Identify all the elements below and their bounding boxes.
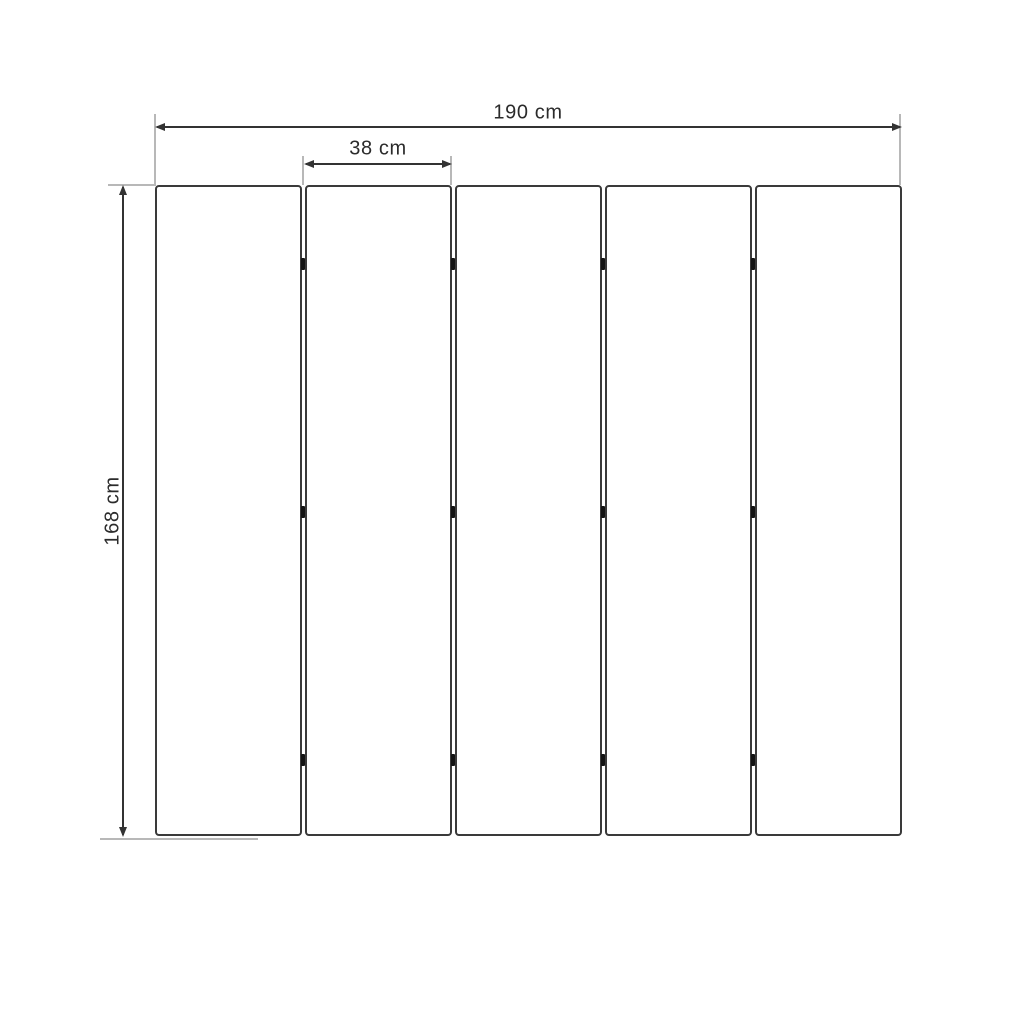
hinge-mark [451,754,455,766]
hinge-mark [601,754,605,766]
hinge-mark [601,258,605,270]
panel-1 [155,185,302,836]
hinge-mark [751,754,755,766]
arrowhead-down-icon [119,827,127,837]
panel-2 [305,185,452,836]
height-label: 168 cm [102,476,125,545]
panel-width-label: 38 cm [349,138,406,161]
hinge-mark [451,258,455,270]
dimension-line-total-width [157,126,900,128]
hinge-mark [301,754,305,766]
dimension-line-panel-width [306,163,450,165]
arrowhead-right-icon [442,160,452,168]
panel-group [155,185,902,836]
hinge-mark [301,506,305,518]
total-width-label: 190 cm [493,102,562,125]
arrowhead-left-icon [304,160,314,168]
hinge-mark [751,258,755,270]
panel-4 [605,185,752,836]
panel-3 [455,185,602,836]
arrowhead-left-icon [155,123,165,131]
hinge-mark [451,506,455,518]
arrowhead-right-icon [892,123,902,131]
extension-line-height-top [108,184,156,186]
extension-line-height-bottom [100,838,258,840]
hinge-mark [301,258,305,270]
panel-5 [755,185,902,836]
dimension-drawing: 190 cm 38 cm 168 cm [0,0,1024,1024]
hinge-mark [751,506,755,518]
arrowhead-up-icon [119,185,127,195]
hinge-mark [601,506,605,518]
